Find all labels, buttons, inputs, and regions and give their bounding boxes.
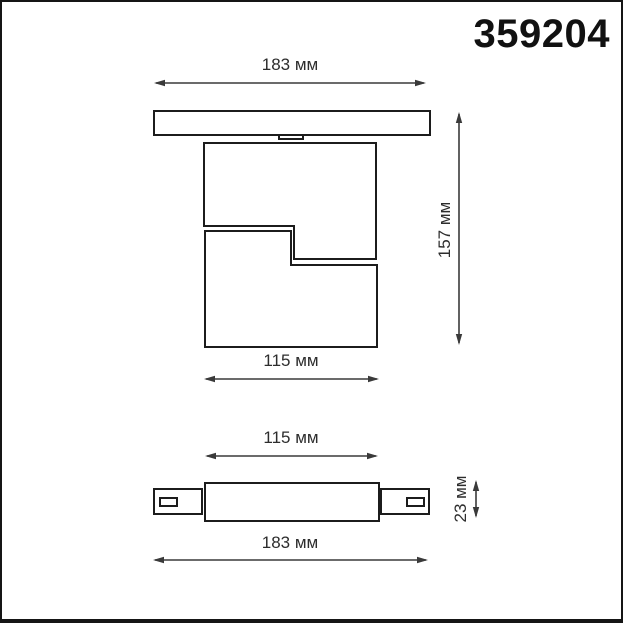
top-dim-track-width-label: 183 мм bbox=[230, 534, 350, 552]
front-view bbox=[154, 80, 462, 382]
front-dim-track-width-label: 183 мм bbox=[230, 56, 350, 74]
front-connector-stub bbox=[279, 135, 303, 139]
front-dim-body-width-label: 115 мм bbox=[231, 352, 351, 370]
top-dim-depth-line bbox=[473, 480, 479, 518]
front-track-bar bbox=[154, 111, 430, 135]
front-dim-body-width-line bbox=[204, 376, 379, 382]
top-dim-depth-label: 23 мм bbox=[452, 459, 470, 539]
technical-drawing-canvas: 359204 bbox=[0, 0, 623, 623]
top-dim-track-width-line bbox=[153, 557, 428, 563]
front-dim-height-line bbox=[456, 112, 462, 345]
top-dim-body-width-line bbox=[205, 453, 378, 459]
top-left-slot-hole bbox=[160, 498, 177, 506]
line-art bbox=[2, 2, 623, 623]
front-dim-track-width-line bbox=[154, 80, 426, 86]
top-dim-body-width-label: 115 мм bbox=[231, 429, 351, 447]
front-dim-height-label: 157 мм bbox=[436, 185, 454, 275]
top-right-slot-hole bbox=[407, 498, 424, 506]
top-body bbox=[205, 483, 379, 521]
